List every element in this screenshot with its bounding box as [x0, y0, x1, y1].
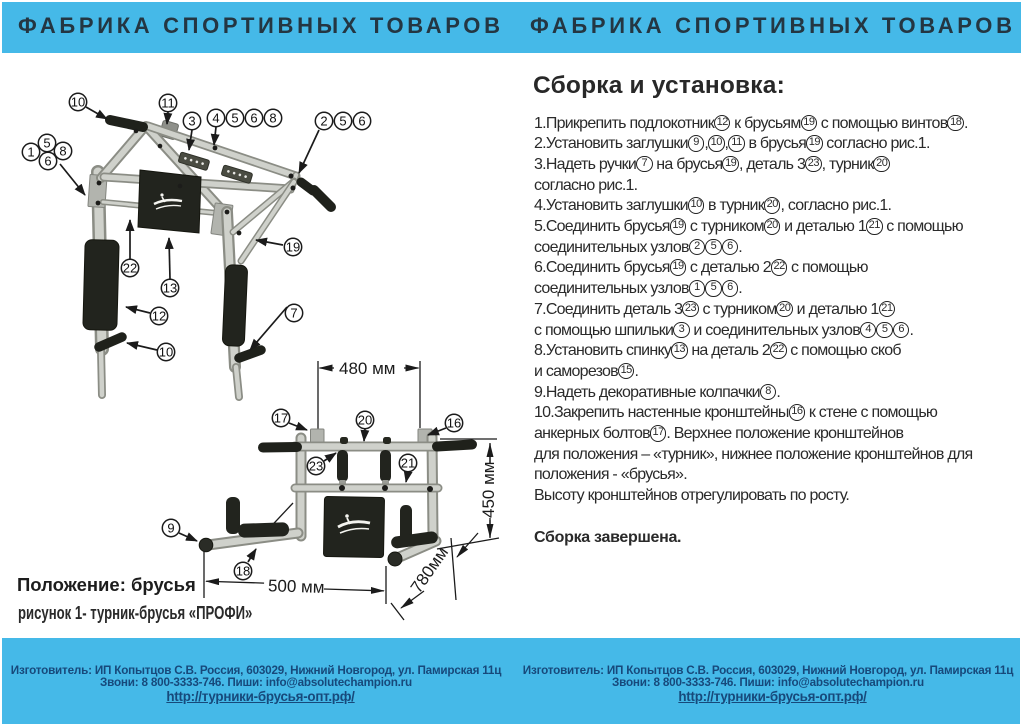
svg-text:18: 18: [236, 564, 250, 579]
svg-text:12: 12: [152, 309, 166, 324]
svg-text:500 мм: 500 мм: [268, 576, 325, 597]
svg-text:23: 23: [309, 459, 323, 474]
svg-text:16: 16: [447, 416, 461, 431]
svg-text:1: 1: [27, 145, 34, 160]
svg-text:3: 3: [188, 114, 195, 129]
svg-text:10: 10: [159, 345, 173, 360]
svg-text:6: 6: [44, 154, 51, 169]
svg-text:22: 22: [123, 261, 137, 276]
svg-text:9: 9: [167, 521, 174, 536]
svg-text:8: 8: [269, 111, 276, 126]
svg-text:5: 5: [339, 114, 346, 129]
svg-text:8: 8: [59, 144, 66, 159]
svg-text:20: 20: [358, 413, 372, 428]
svg-text:480 мм: 480 мм: [339, 359, 395, 378]
svg-text:7: 7: [290, 306, 297, 321]
svg-text:2: 2: [320, 114, 327, 129]
svg-text:4: 4: [212, 111, 219, 126]
svg-text:10: 10: [71, 95, 85, 110]
svg-text:13: 13: [163, 281, 177, 296]
svg-text:11: 11: [161, 96, 175, 111]
svg-text:17: 17: [274, 411, 288, 426]
svg-text:450 мм: 450 мм: [479, 462, 498, 518]
svg-text:19: 19: [286, 240, 300, 255]
svg-text:21: 21: [401, 456, 415, 471]
svg-text:6: 6: [250, 111, 257, 126]
svg-text:6: 6: [358, 114, 365, 129]
svg-text:5: 5: [231, 111, 238, 126]
svg-text:5: 5: [43, 136, 50, 151]
